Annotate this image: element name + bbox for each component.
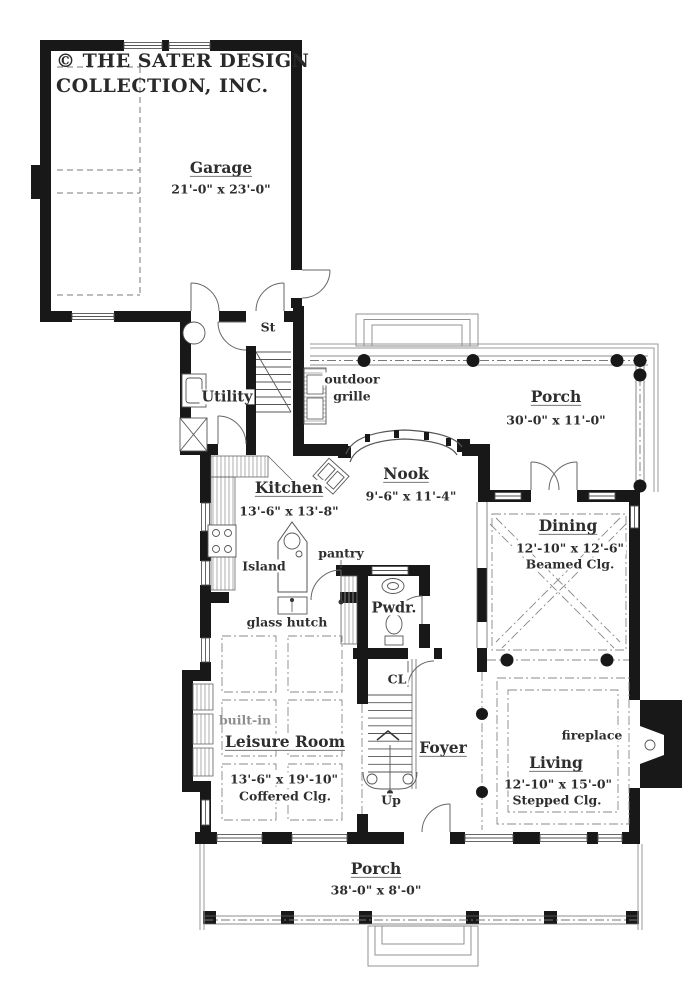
annotation-outdoor-grille-1: outdoor [322,372,381,385]
room-label-utility: Utility [200,389,255,404]
floor-plan-drawing [0,0,700,1004]
water-heater-icon [183,322,205,344]
annotation-island: Island [240,559,288,572]
glass-hutch-icon [278,597,307,614]
room-label-porch-lower: Porch [349,861,403,877]
room-ceiling-dining: Beamed Clg. [524,557,617,570]
room-ceiling-living: Stepped Clg. [510,793,603,806]
room-label-kitchen: Kitchen [253,480,325,496]
room-dims-living: 12'-10" x 15'-0" [502,777,614,790]
annotation-glass-hutch: glass hutch [245,615,330,628]
room-ceiling-leisure: Coffered Clg. [237,789,333,802]
room-dims-porch-lower: 38'-0" x 8'-0" [329,883,424,896]
floor-plan: © THE SATER DESIGN COLLECTION, INC. Gara… [0,0,700,1004]
powder-sink-icon [382,579,404,594]
annotation-fireplace: fireplace [560,728,625,741]
island-icon [278,522,307,592]
built-in-shelves-icon [193,684,213,776]
room-label-powder: Pwdr. [370,600,419,615]
room-label-dining: Dining [537,518,600,534]
room-dims-porch-upper: 30'-0" x 11'-0" [504,413,607,426]
annotation-closet: CL [386,672,409,685]
annotation-up: Up [379,793,403,806]
room-label-porch-upper: Porch [529,389,583,405]
stairs-st-icon [256,352,291,412]
room-label-nook: Nook [381,466,431,482]
copyright-line-1: © THE SATER DESIGN [56,52,309,72]
garage-door-dashed-lines [57,67,140,295]
laundry-tub-icon [180,418,207,451]
copyright-line-2: COLLECTION, INC. [56,77,269,97]
toilet-icon [385,614,403,645]
lower-porch [200,844,642,966]
annotation-outdoor-grille-2: grille [331,389,373,402]
room-label-foyer: Foyer [417,740,469,756]
room-dims-leisure: 13'-6" x 19'-10" [228,772,340,785]
room-label-leisure: Leisure Room [223,734,347,750]
porch-steps-upper [356,314,478,346]
room-dims-garage: 21'-0" x 23'-0" [169,182,272,195]
room-dims-kitchen: 13'-6" x 13'-8" [237,504,340,517]
stove-icon [208,525,236,557]
room-label-living: Living [527,755,585,771]
room-label-garage: Garage [188,160,254,176]
annotation-built-in: built-in [217,713,273,726]
room-dims-dining: 12'-10" x 12'-6" [514,541,626,554]
annotation-stairs: St [259,320,278,333]
room-dims-nook: 9'-6" x 11'-4" [364,489,459,502]
nook-bay-window [346,430,462,462]
annotation-pantry: pantry [316,546,366,559]
porch-steps-lower [368,926,478,966]
